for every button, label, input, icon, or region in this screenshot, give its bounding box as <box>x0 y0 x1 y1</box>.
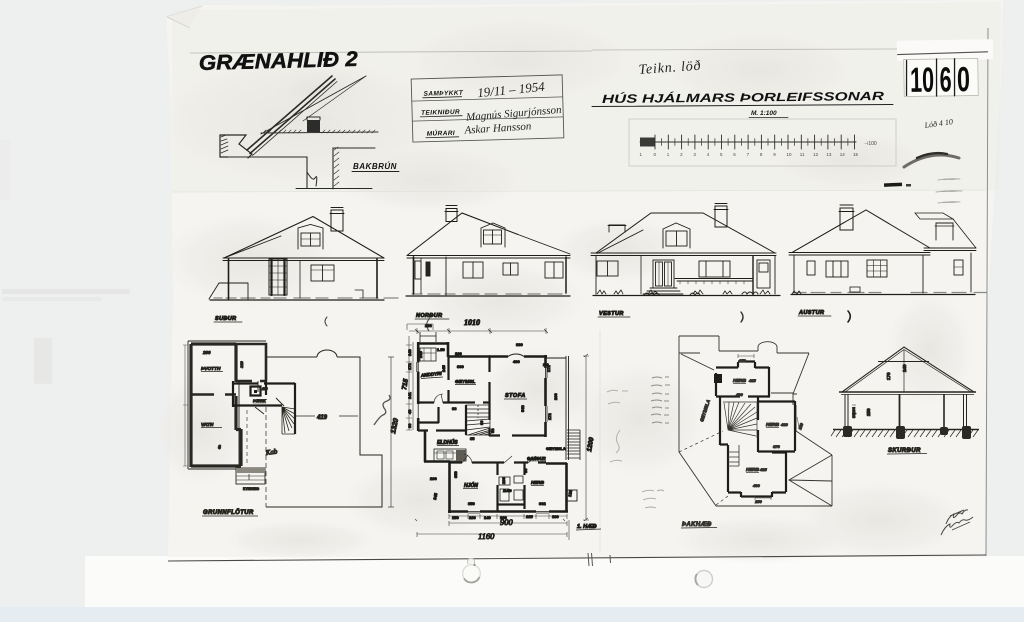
svg-text:GRÆNAHLIÐ 2: GRÆNAHLIÐ 2 <box>199 48 359 75</box>
svg-text:290: 290 <box>202 350 211 355</box>
svg-text:13: 13 <box>826 152 832 157</box>
svg-text:56: 56 <box>490 428 495 433</box>
svg-text:410: 410 <box>780 422 788 427</box>
svg-text:ÞURRK: ÞURRK <box>253 399 266 403</box>
svg-text:160: 160 <box>469 515 476 520</box>
svg-text:15: 15 <box>853 152 859 157</box>
svg-text:1010: 1010 <box>464 318 480 327</box>
svg-text:VESTUR: VESTUR <box>599 311 624 317</box>
svg-text:GEYMSLA: GEYMSLA <box>546 446 566 451</box>
svg-text:HJÓN: HJÓN <box>464 482 478 489</box>
svg-text:ÞVOTTH: ÞVOTTH <box>201 366 221 372</box>
svg-text:11: 11 <box>800 152 805 157</box>
svg-text:HÚS HJÁLMARS ÞORLEIFSSONAR: HÚS HJÁLMARS ÞORLEIFSSONAR <box>602 88 885 106</box>
svg-text:86|104: 86|104 <box>852 407 856 418</box>
svg-text:GRUNNFLÖTUR: GRUNNFLÖTUR <box>203 509 254 516</box>
svg-text:ELDHÚS: ELDHÚS <box>437 439 458 446</box>
svg-text:1.50: 1.50 <box>437 347 446 352</box>
svg-text:172: 172 <box>547 413 552 420</box>
svg-text:141: 141 <box>407 392 412 399</box>
svg-text:415: 415 <box>759 467 767 472</box>
svg-text:GEYMSL: GEYMSL <box>455 379 475 385</box>
svg-text:245: 245 <box>441 365 446 372</box>
svg-text:KYNDING: KYNDING <box>243 487 259 491</box>
svg-text:12: 12 <box>813 152 819 157</box>
svg-text:400: 400 <box>752 483 760 488</box>
svg-text:AUSTUR: AUSTUR <box>798 310 824 316</box>
svg-text:900: 900 <box>500 517 514 527</box>
svg-text:BAÐ: BAÐ <box>503 488 512 493</box>
svg-text:2.0: 2.0 <box>543 362 549 367</box>
svg-text:GANGUR: GANGUR <box>527 456 546 461</box>
svg-text:6: 6 <box>939 60 952 99</box>
svg-text:150: 150 <box>755 499 762 504</box>
svg-text:830: 830 <box>516 342 523 347</box>
svg-text:35: 35 <box>470 436 475 441</box>
svg-text:150: 150 <box>452 515 459 520</box>
svg-text:225: 225 <box>526 514 533 519</box>
svg-text:150: 150 <box>739 358 746 363</box>
svg-text:90: 90 <box>523 468 528 473</box>
svg-text:SKURÐUR: SKURÐUR <box>888 448 921 454</box>
svg-text:240: 240 <box>902 364 907 372</box>
svg-text:14: 14 <box>840 152 846 157</box>
svg-text:BAKBRÚN: BAKBRÚN <box>353 162 397 171</box>
svg-text:200: 200 <box>430 476 437 481</box>
svg-text:250: 250 <box>866 408 871 416</box>
svg-text:⊣100: ⊣100 <box>864 141 877 147</box>
svg-text:SUÐUR: SUÐUR <box>215 316 237 322</box>
svg-text:302: 302 <box>539 501 546 506</box>
svg-text:90: 90 <box>407 423 412 428</box>
svg-text:10: 10 <box>910 61 935 100</box>
svg-text:HERB: HERB <box>531 480 545 485</box>
svg-text:400: 400 <box>735 392 743 397</box>
svg-text:370: 370 <box>773 444 780 449</box>
svg-text:HERB: HERB <box>766 422 780 427</box>
svg-text:290: 290 <box>501 477 506 484</box>
svg-text:36: 36 <box>452 406 457 411</box>
svg-text:0: 0 <box>957 60 971 99</box>
svg-text:M. 1:100: M. 1:100 <box>751 110 777 117</box>
svg-text:415: 415 <box>748 378 756 383</box>
svg-text:VATN: VATN <box>201 422 214 428</box>
svg-text:350: 350 <box>453 471 458 478</box>
svg-text:310: 310 <box>239 361 244 368</box>
svg-text:STOFA: STOFA <box>505 393 526 399</box>
svg-text:110: 110 <box>262 387 268 391</box>
svg-text:172: 172 <box>407 363 412 370</box>
svg-text:HERB: HERB <box>746 467 760 472</box>
svg-text:40: 40 <box>407 409 412 414</box>
svg-text:300: 300 <box>457 364 464 369</box>
svg-text:170: 170 <box>886 372 891 380</box>
svg-text:160: 160 <box>455 351 462 356</box>
svg-text:130: 130 <box>552 514 559 519</box>
svg-text:ÞAKHÆÐ: ÞAKHÆÐ <box>682 522 712 528</box>
svg-text:10: 10 <box>787 152 793 157</box>
svg-text:548: 548 <box>520 405 525 412</box>
svg-text:400: 400 <box>513 359 520 364</box>
svg-text:286: 286 <box>425 323 432 328</box>
svg-text:90: 90 <box>479 420 484 425</box>
svg-text:419: 419 <box>316 415 328 421</box>
svg-text:350: 350 <box>468 501 475 506</box>
svg-text:6: 6 <box>218 445 221 451</box>
svg-text:140: 140 <box>484 515 491 520</box>
svg-text:1160: 1160 <box>478 531 495 541</box>
svg-text:245: 245 <box>418 351 423 358</box>
svg-text:140: 140 <box>407 349 412 356</box>
svg-text:HERB: HERB <box>733 378 747 383</box>
svg-text:260: 260 <box>553 393 558 400</box>
